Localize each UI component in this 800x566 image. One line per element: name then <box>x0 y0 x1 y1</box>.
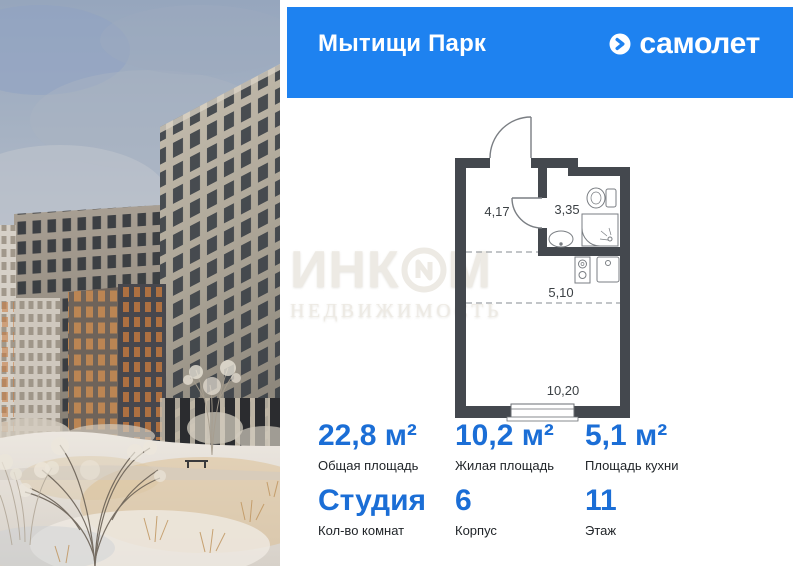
stat-value: 10,2 м² <box>455 421 590 451</box>
stove-icon <box>575 257 590 283</box>
stat-value: Студия <box>318 486 453 516</box>
stat-value: 22,8 м² <box>318 421 453 451</box>
stat-total-area: 22,8 м² Общая площадь <box>318 421 453 473</box>
stat-building: 6 Корпус <box>455 486 590 538</box>
room-label-kitchen: 5,10 <box>548 285 573 300</box>
watermark-text: ИНК <box>290 244 400 296</box>
room-label-bathroom: 3,35 <box>554 202 579 217</box>
samolet-arrow-circle-icon <box>609 33 631 55</box>
brand-logo: самолет <box>609 27 760 61</box>
project-title: Мытищи Парк <box>318 30 486 58</box>
stat-kitchen-area: 5,1 м² Площадь кухни <box>585 421 720 473</box>
stat-label: Жилая площадь <box>455 458 590 473</box>
kitchen-sink-icon <box>597 257 619 282</box>
stat-value: 6 <box>455 486 590 516</box>
stat-value: 5,1 м² <box>585 421 720 451</box>
stat-label: Общая площадь <box>318 458 453 473</box>
shower-icon <box>582 214 618 246</box>
stat-label: Площадь кухни <box>585 458 720 473</box>
stat-label: Кол-во комнат <box>318 523 453 538</box>
mid-buildings <box>68 284 166 440</box>
room-label-hallway: 4,17 <box>484 204 509 219</box>
listing-card: { "header": { "project_name": "Мытищи Па… <box>0 0 800 566</box>
brand-name: самолет <box>639 27 760 61</box>
header-bar: Мытищи Парк самолет <box>287 7 793 98</box>
stat-label: Этаж <box>585 523 720 538</box>
stat-label: Корпус <box>455 523 590 538</box>
building-photo <box>0 0 280 566</box>
entry-door <box>490 117 531 158</box>
stat-value: 11 <box>585 486 720 516</box>
room-label-living: 10,20 <box>547 383 580 398</box>
floor-plan: 4,17 3,35 5,10 10,20 <box>440 100 640 435</box>
toilet-icon <box>587 188 616 208</box>
stat-rooms: Студия Кол-во комнат <box>318 486 453 538</box>
stat-living-area: 10,2 м² Жилая площадь <box>455 421 590 473</box>
stat-floor: 11 Этаж <box>585 486 720 538</box>
bathroom-door <box>512 198 542 228</box>
bath-sink-icon <box>549 231 573 247</box>
